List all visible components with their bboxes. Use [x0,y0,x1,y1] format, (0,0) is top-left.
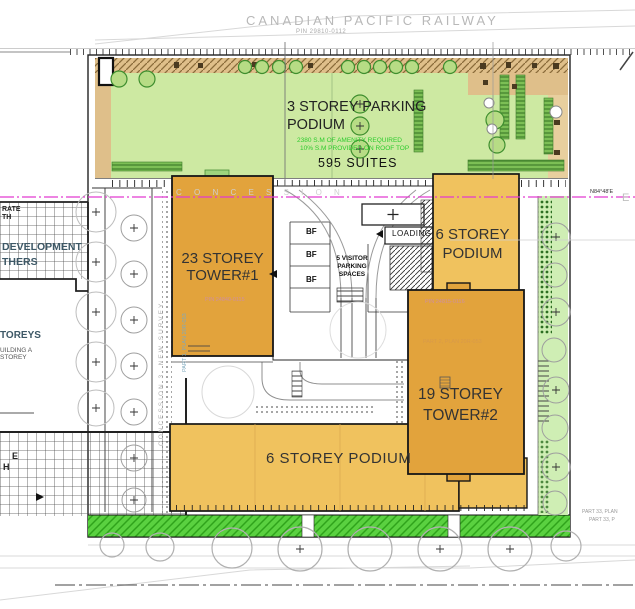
visitor-parking-note-line2: PARKING [329,263,375,270]
neighbor-frag-others: THERS [2,257,38,269]
neighbor-frag-h: H [3,462,10,472]
courtyard-ramp [292,371,302,397]
railway-pin: PIN 29810-0112 [296,29,346,36]
neighbor-frag-development: DEVELOPMENT [2,242,82,254]
bf-stall-2: BF [306,251,317,260]
neighbor-frag-rate: RATE [2,206,21,214]
site-plan-graphics [0,0,635,609]
roof-amenity-note1: 2380 S.M OF AMENITY REQUIRED [297,137,402,144]
neighbor-frag-e: E [12,451,18,461]
neighbor-frag-th: TH [2,214,11,222]
south-landscape-strip [88,515,570,537]
roof-label-line1: 3 STOREY PARKING [287,99,426,115]
tower1-part-note: PART 1, PLAN 20R-053 [182,313,188,372]
roof-label-line2: PODIUM [287,117,345,133]
bf-stall-1: BF [306,228,317,237]
visitor-parking-note-line3: SPACES [329,271,375,278]
building-tower2 [408,283,524,481]
railway-track [0,49,635,53]
loading-label: LOADING [392,230,432,239]
tower1-pin: PIN 24840-0115 [205,297,245,303]
tower2-label-line1: 19 STOREY [408,386,513,403]
tower2-label-line2: TOWER#2 [408,407,513,424]
concession-vertical-text: CONCESSION 3, NEW SURVEY [158,302,165,446]
part33-note-line1: PART 33, PLAN [582,510,618,516]
east-street-letter: E [622,192,629,204]
tower1-label-line2: TOWER#1 [175,268,270,285]
railway-name: CANADIAN PACIFIC RAILWAY [246,14,499,29]
visitor-parking-note-line1: 5 VISITOR [329,255,375,262]
site-plan: CANADIAN PACIFIC RAILWAY PIN 29810-0112 … [0,0,635,609]
bearing-label: N84°48'E [590,189,613,195]
podium-east-label-line1: 6 STOREY [430,227,515,244]
neighbor-frag-storeys: TOREYS [0,330,41,341]
bf-stall-3: BF [306,276,317,285]
roof-amenity-note2: 10% S.M PROVIDED ON ROOF TOP [300,145,409,152]
tower2-part-note: PART 2, PLAN 20R-053 [423,339,482,345]
podium-east-label-line2: PODIUM [430,246,515,263]
tower1-label-line1: 23 STOREY [175,251,270,268]
part33-note-line2: PART 33, P [589,518,615,524]
concession-spaced-text: C O N C E S S I O N [176,189,345,198]
suites-count: 595 SUITES [318,156,397,170]
podium-south-label: 6 STOREY PODIUM [266,451,411,468]
neighbor-frag-storey: STOREY [0,354,27,361]
tower2-pin: PIN 24815-0116 [425,299,465,305]
